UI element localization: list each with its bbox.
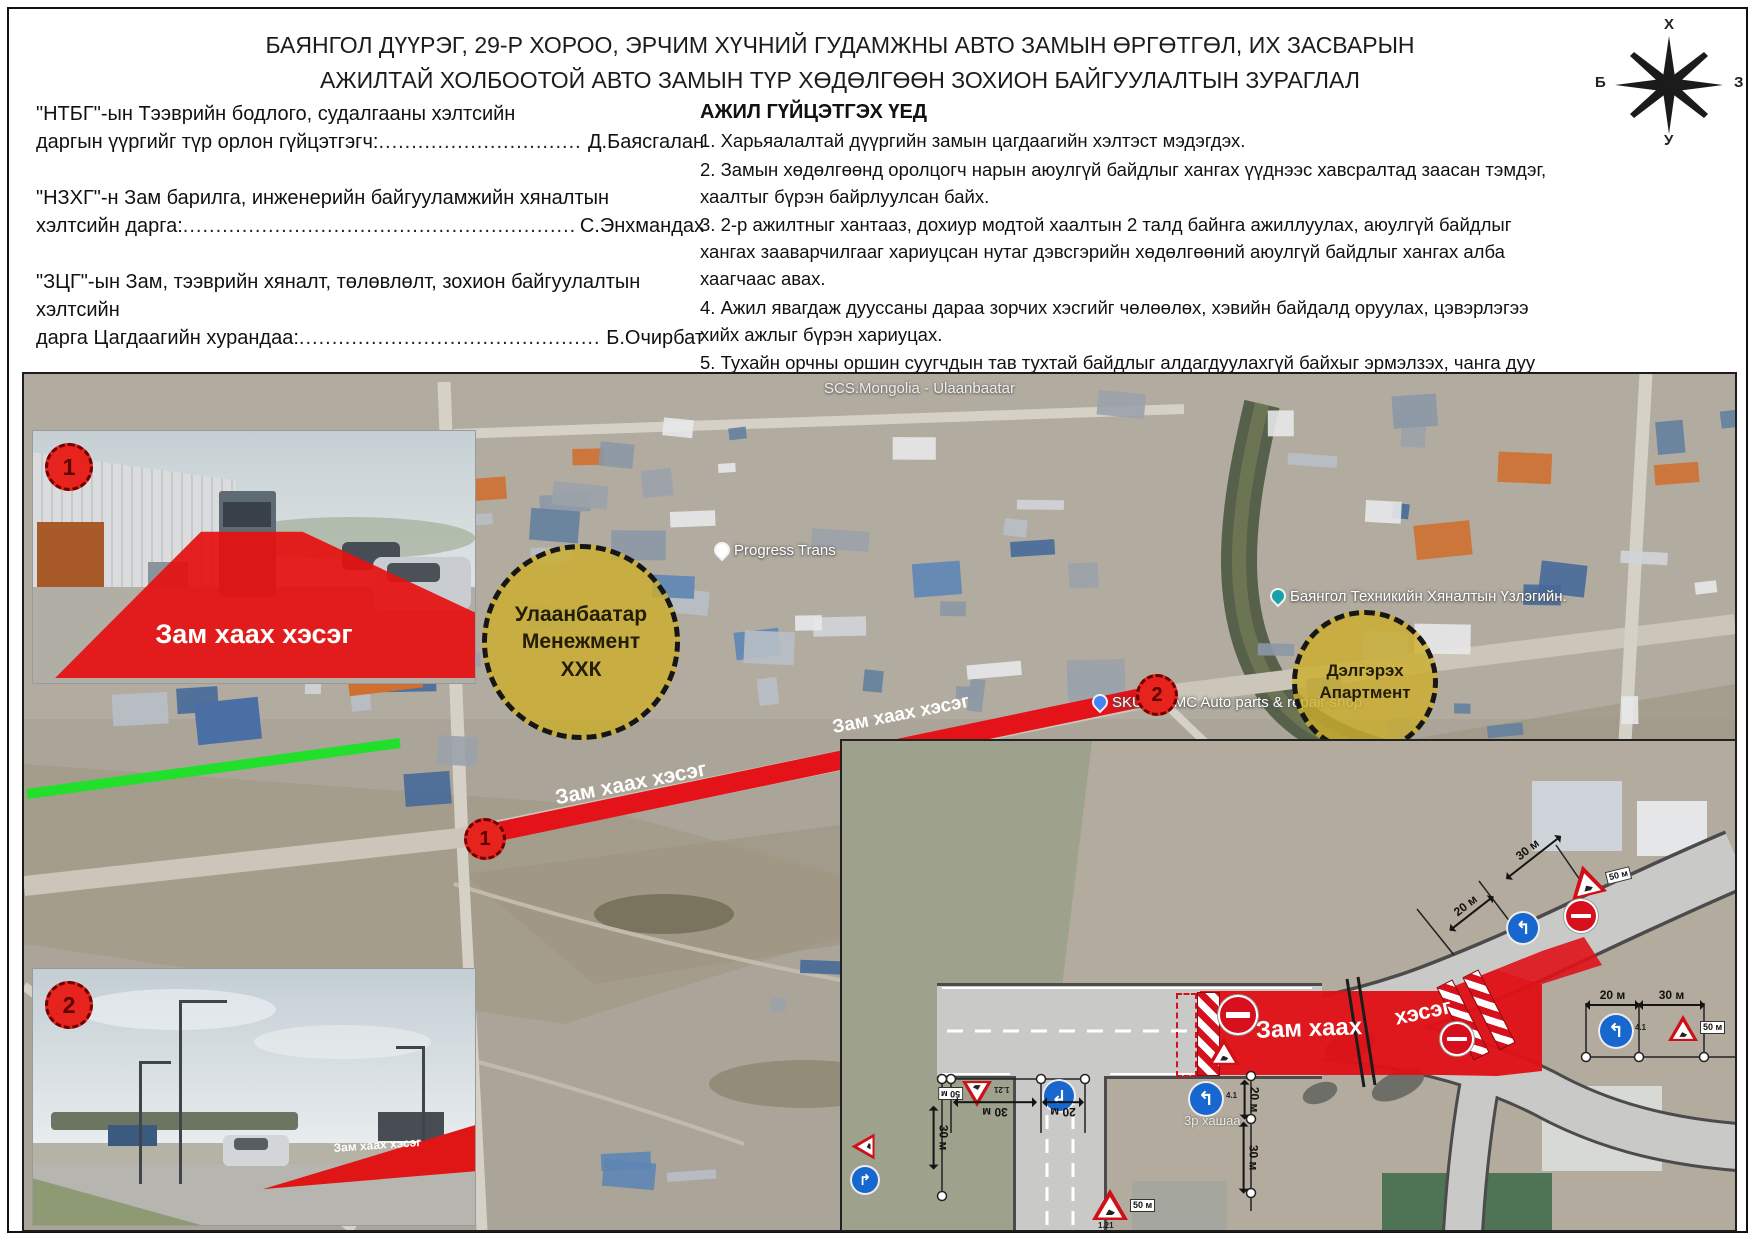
photo-truck-windshield — [223, 502, 271, 527]
measurement-label: 30 м — [982, 1105, 1008, 1118]
scheme-closure-label: Зам хаах — [1234, 1012, 1385, 1045]
official-role-label: хэлтсийн дарга: — [36, 212, 183, 240]
closure-point-1: 1 — [464, 818, 506, 860]
zone-label: Дэлгэрэх Апартмент — [1310, 660, 1420, 704]
measurement-label: 20 м — [1050, 1105, 1076, 1118]
official-role: "НТБГ"-ын Тээврийн бодлого, судалгааны х… — [36, 100, 704, 128]
measurement: 20 м — [1043, 1101, 1083, 1118]
photo-treeline — [51, 1112, 299, 1130]
page-title-line2: АЖИЛТАЙ ХОЛБООТОЙ АВТО ЗАМЫН ТҮР ХӨДӨЛГӨ… — [120, 63, 1560, 98]
photo-closure-label: Зам хаах хэсэг — [144, 619, 365, 650]
measurement-label: 30 м — [936, 1125, 949, 1151]
compass-west-label: Б — [1595, 74, 1606, 91]
signature-leader: ........................................… — [378, 128, 583, 156]
measurement: 20 м — [1243, 1081, 1260, 1119]
photo-truck — [108, 1125, 157, 1145]
scheme-base — [842, 741, 1737, 1232]
closure-point-2: 2 — [1136, 674, 1178, 716]
sign-code: 4.1 — [1635, 1023, 1646, 1032]
compass-south-label: У — [1664, 132, 1673, 149]
official-role-label: даргын үүргийг түр орлон гүйцэтгэгч: — [36, 128, 378, 156]
photo-cloud — [254, 1025, 431, 1058]
closure-outline — [1176, 993, 1197, 1077]
zone-label: Улаанбаатар Менежмент ХХК — [506, 601, 656, 683]
sign-plate: 50 м — [1700, 1021, 1725, 1034]
official-role-label: дарга Цагдаагийн хурандаа: — [36, 324, 299, 352]
official-role: "НЗХГ"-н Зам барилга, инженерийн байгуул… — [36, 184, 704, 212]
measurement-label: 20 м — [1600, 989, 1626, 1002]
photo-inset-1: Зам хаах хэсэг 1 — [32, 430, 476, 684]
poi-label: Progress Trans — [734, 542, 836, 559]
photo-badge-1: 1 — [45, 443, 93, 491]
no-entry-sign-icon — [1566, 901, 1596, 931]
compass-star-icon — [1596, 20, 1742, 146]
measurement-label: 30 м — [1659, 989, 1685, 1002]
compass-rose: Х У Б З — [1596, 20, 1742, 146]
official-entry: "НЗХГ"-н Зам барилга, инженерийн байгуул… — [36, 184, 704, 241]
work-item: 4. Ажил явагдаж дууссаны дараа зорчих хэ… — [700, 294, 1552, 348]
photo-badge-2: 2 — [45, 981, 93, 1029]
official-name: Б.Очирбат — [601, 324, 704, 352]
measurement-label: 20 м — [1247, 1087, 1260, 1113]
sign-code: 1.21 — [1098, 1221, 1114, 1230]
official-entry: "НТБГ"-ын Тээврийн бодлого, судалгааны х… — [36, 100, 704, 157]
measurement: 30 м — [1242, 1123, 1259, 1193]
no-entry-sign-icon — [1442, 1024, 1472, 1054]
work-heading: АЖИЛ ГҮЙЦЭТГЭХ ҮЕД — [700, 98, 1552, 127]
signature-leader: ........................................… — [183, 212, 575, 240]
official-name: Д.Баясгалан — [583, 128, 704, 156]
photo-lamppost — [139, 1061, 142, 1184]
page-title-line1: БАЯНГОЛ ДҮҮРЭГ, 29-Р ХОРОО, ЭРЧИМ ХҮЧНИЙ… — [120, 28, 1560, 63]
work-item: 1. Харьяалалтай дүүргийн замын цагдаагий… — [700, 127, 1552, 154]
photo-car — [223, 1135, 289, 1166]
zone-circle-delgerekh-apartment: Дэлгэрэх Апартмент — [1292, 610, 1438, 754]
photo-container — [37, 522, 103, 598]
gate-label: 3р хашаа — [1184, 1113, 1241, 1128]
satellite-map: SCS.Mongolia - Ulaanbaatar Progress Tran… — [22, 372, 1737, 1232]
sign-code: 1.21 — [994, 1085, 1010, 1094]
sign-plate: 50 м — [1130, 1199, 1155, 1212]
photo-car-window — [234, 1138, 268, 1150]
measurement: 30 м — [954, 1101, 1036, 1118]
turn-sign-icon: ↰ — [1600, 1015, 1632, 1047]
compass-north-label: Х — [1664, 16, 1674, 33]
official-role: "ЗЦГ"-ын Зам, тээврийн хяналт, төлөвлөлт… — [36, 268, 704, 325]
traffic-scheme-inset: 50 м 50 м 1.21 50 м 50 м 1.21 ↱ ↰ 4.1 ↰ … — [840, 739, 1737, 1232]
measurement: 30 м — [932, 1107, 949, 1169]
measurement-label: 30 м — [1246, 1145, 1259, 1171]
photo-lamppost — [179, 1000, 182, 1184]
turn-sign-icon: ↱ — [852, 1167, 878, 1193]
official-entry: "ЗЦГ"-ын Зам, тээврийн хяналт, төлөвлөлт… — [36, 268, 704, 353]
work-item: 2. Замын хөдөлгөөнд оролцогч нарын аюулг… — [700, 156, 1552, 210]
work-item: 3. 2-р ажилтныг хантааз, дохиур модтой х… — [700, 211, 1552, 293]
signature-leader: ........................................… — [299, 324, 601, 352]
measurement: 30 м — [1639, 989, 1704, 1006]
sign-code: 4.1 — [1226, 1091, 1237, 1100]
zone-circle-ulaanbaatar-management: Улаанбаатар Менежмент ХХК — [482, 544, 680, 740]
poi-label: SCS.Mongolia - Ulaanbaatar — [824, 380, 1015, 397]
poi-label: Баянгол Техникийн Хяналтын Үзлэгийн. — [1290, 588, 1567, 605]
measurement: 20 м — [1586, 989, 1639, 1006]
turn-sign-icon: ↰ — [1190, 1083, 1222, 1115]
page-title: БАЯНГОЛ ДҮҮРЭГ, 29-Р ХОРОО, ЭРЧИМ ХҮЧНИЙ… — [120, 28, 1560, 97]
turn-sign-icon: ↰ — [1508, 913, 1538, 943]
compass-east-label: З — [1734, 74, 1743, 91]
sign-plate: 50 м — [938, 1087, 963, 1100]
official-name: С.Энхмандах — [575, 212, 704, 240]
photo-inset-2: Зам хаах хэсэг 2 — [32, 968, 476, 1226]
